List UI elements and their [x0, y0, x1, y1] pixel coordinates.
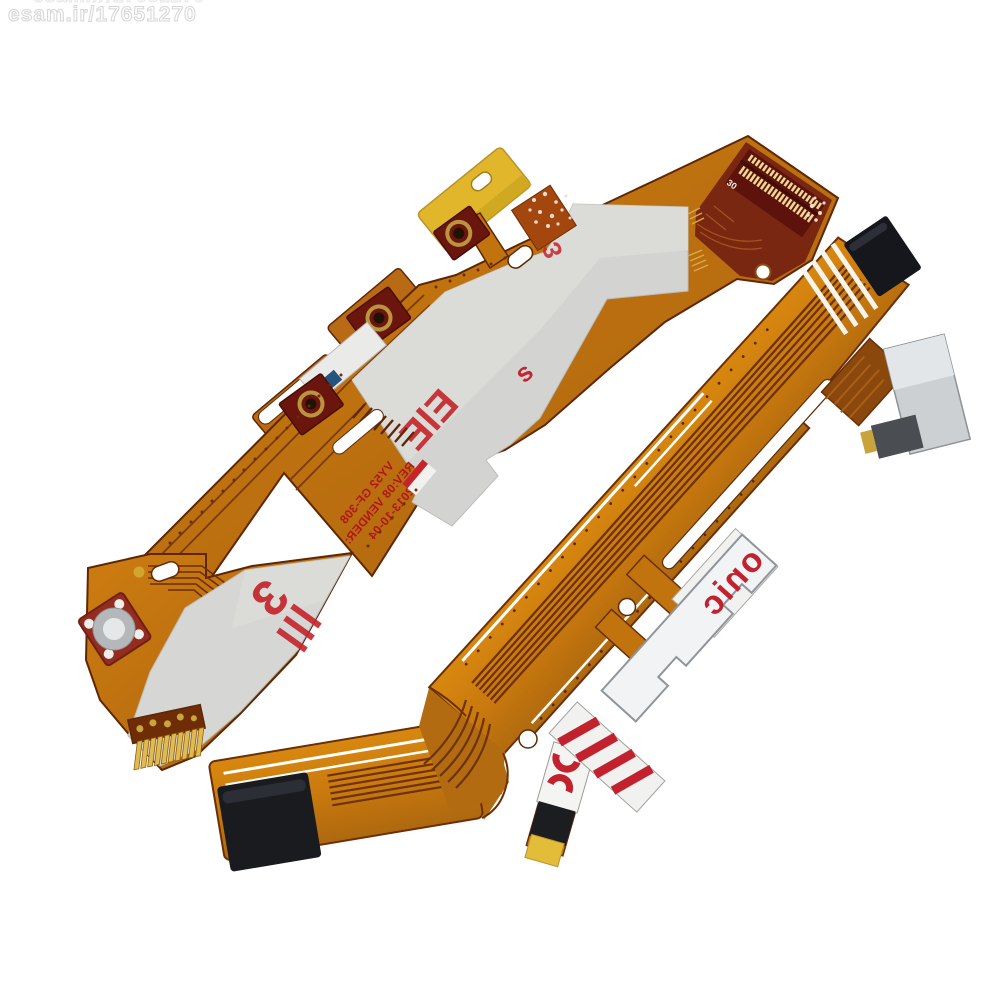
svg-text:esam.ir/17651270: esam.ir/17651270	[8, 3, 197, 26]
